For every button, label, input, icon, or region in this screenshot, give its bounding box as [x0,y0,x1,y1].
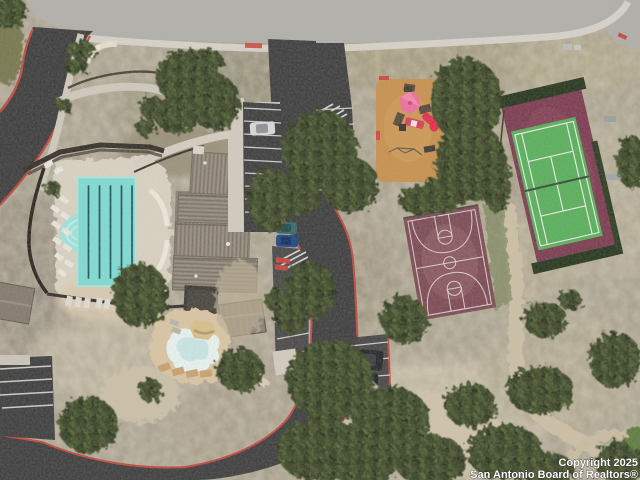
svg-text:San Antonio Board of Realtors®: San Antonio Board of Realtors® [470,469,638,480]
svg-text:Copyright 2025: Copyright 2025 [559,457,638,469]
